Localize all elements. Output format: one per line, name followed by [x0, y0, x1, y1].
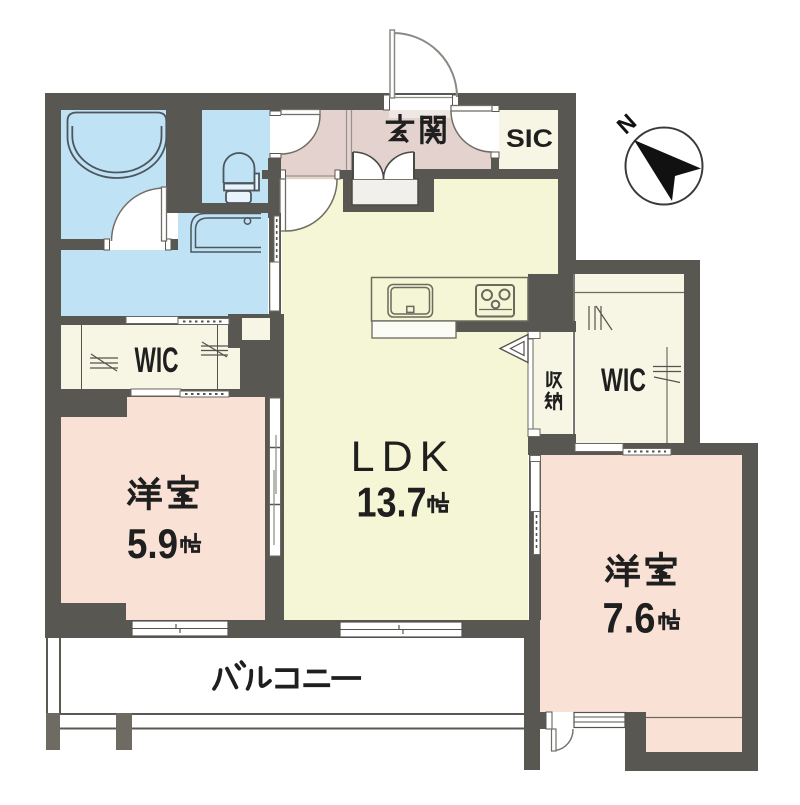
svg-text:13.7: 13.7 — [357, 479, 427, 526]
svg-text:WIC: WIC — [135, 341, 179, 380]
svg-text:7.6: 7.6 — [603, 595, 656, 643]
svg-text:WIC: WIC — [601, 362, 646, 398]
svg-text:SIC: SIC — [506, 125, 553, 153]
svg-text:LDK: LDK — [351, 433, 456, 481]
svg-text:5.9: 5.9 — [127, 520, 178, 567]
